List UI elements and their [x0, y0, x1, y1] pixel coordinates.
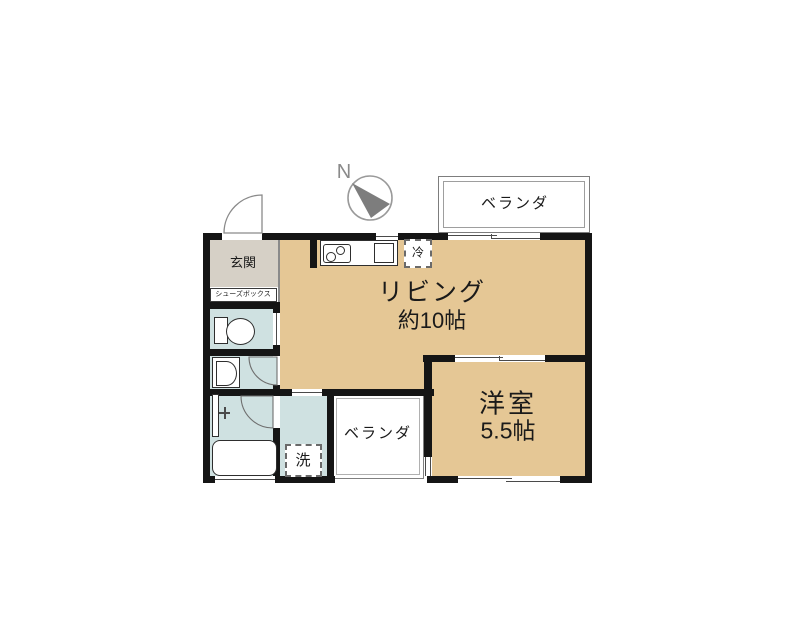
entrance-label: 玄関	[230, 256, 256, 270]
western-room-label: 洋室	[479, 390, 537, 419]
western-room-size: 5.5帖	[481, 418, 536, 443]
living-room-size: 約10帖	[398, 309, 466, 333]
floor-plan: N ベランダ ベランダ	[0, 0, 795, 636]
bathtub-icon	[212, 440, 277, 476]
faucet-icon	[224, 407, 226, 419]
stove-burner-icon	[326, 252, 336, 262]
refrigerator-label: 冷	[412, 246, 424, 259]
shower-panel-icon	[212, 394, 219, 437]
stove-burner-icon	[336, 246, 345, 255]
washer-label: 洗	[295, 453, 310, 470]
shoe-box-label: シューズボックス	[215, 291, 270, 299]
living-room-label: リビング	[378, 279, 486, 307]
kitchen-sink-icon	[374, 243, 394, 263]
washbasin-bowl-icon	[216, 361, 237, 386]
toilet-bowl-icon	[226, 318, 255, 345]
